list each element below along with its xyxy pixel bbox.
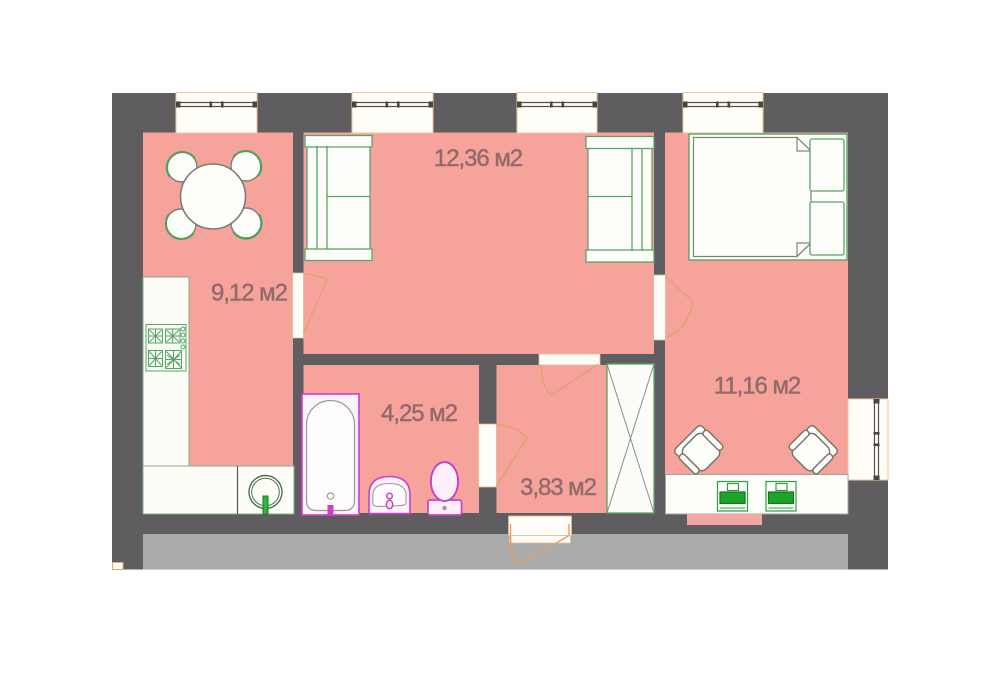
svg-text:4,25 м2: 4,25 м2 xyxy=(381,400,458,427)
svg-text:12,36 м2: 12,36 м2 xyxy=(434,145,523,172)
svg-text:3,83 м2: 3,83 м2 xyxy=(520,474,597,501)
svg-text:11,16 м2: 11,16 м2 xyxy=(714,373,801,400)
svg-text:9,12 м2: 9,12 м2 xyxy=(211,280,288,307)
